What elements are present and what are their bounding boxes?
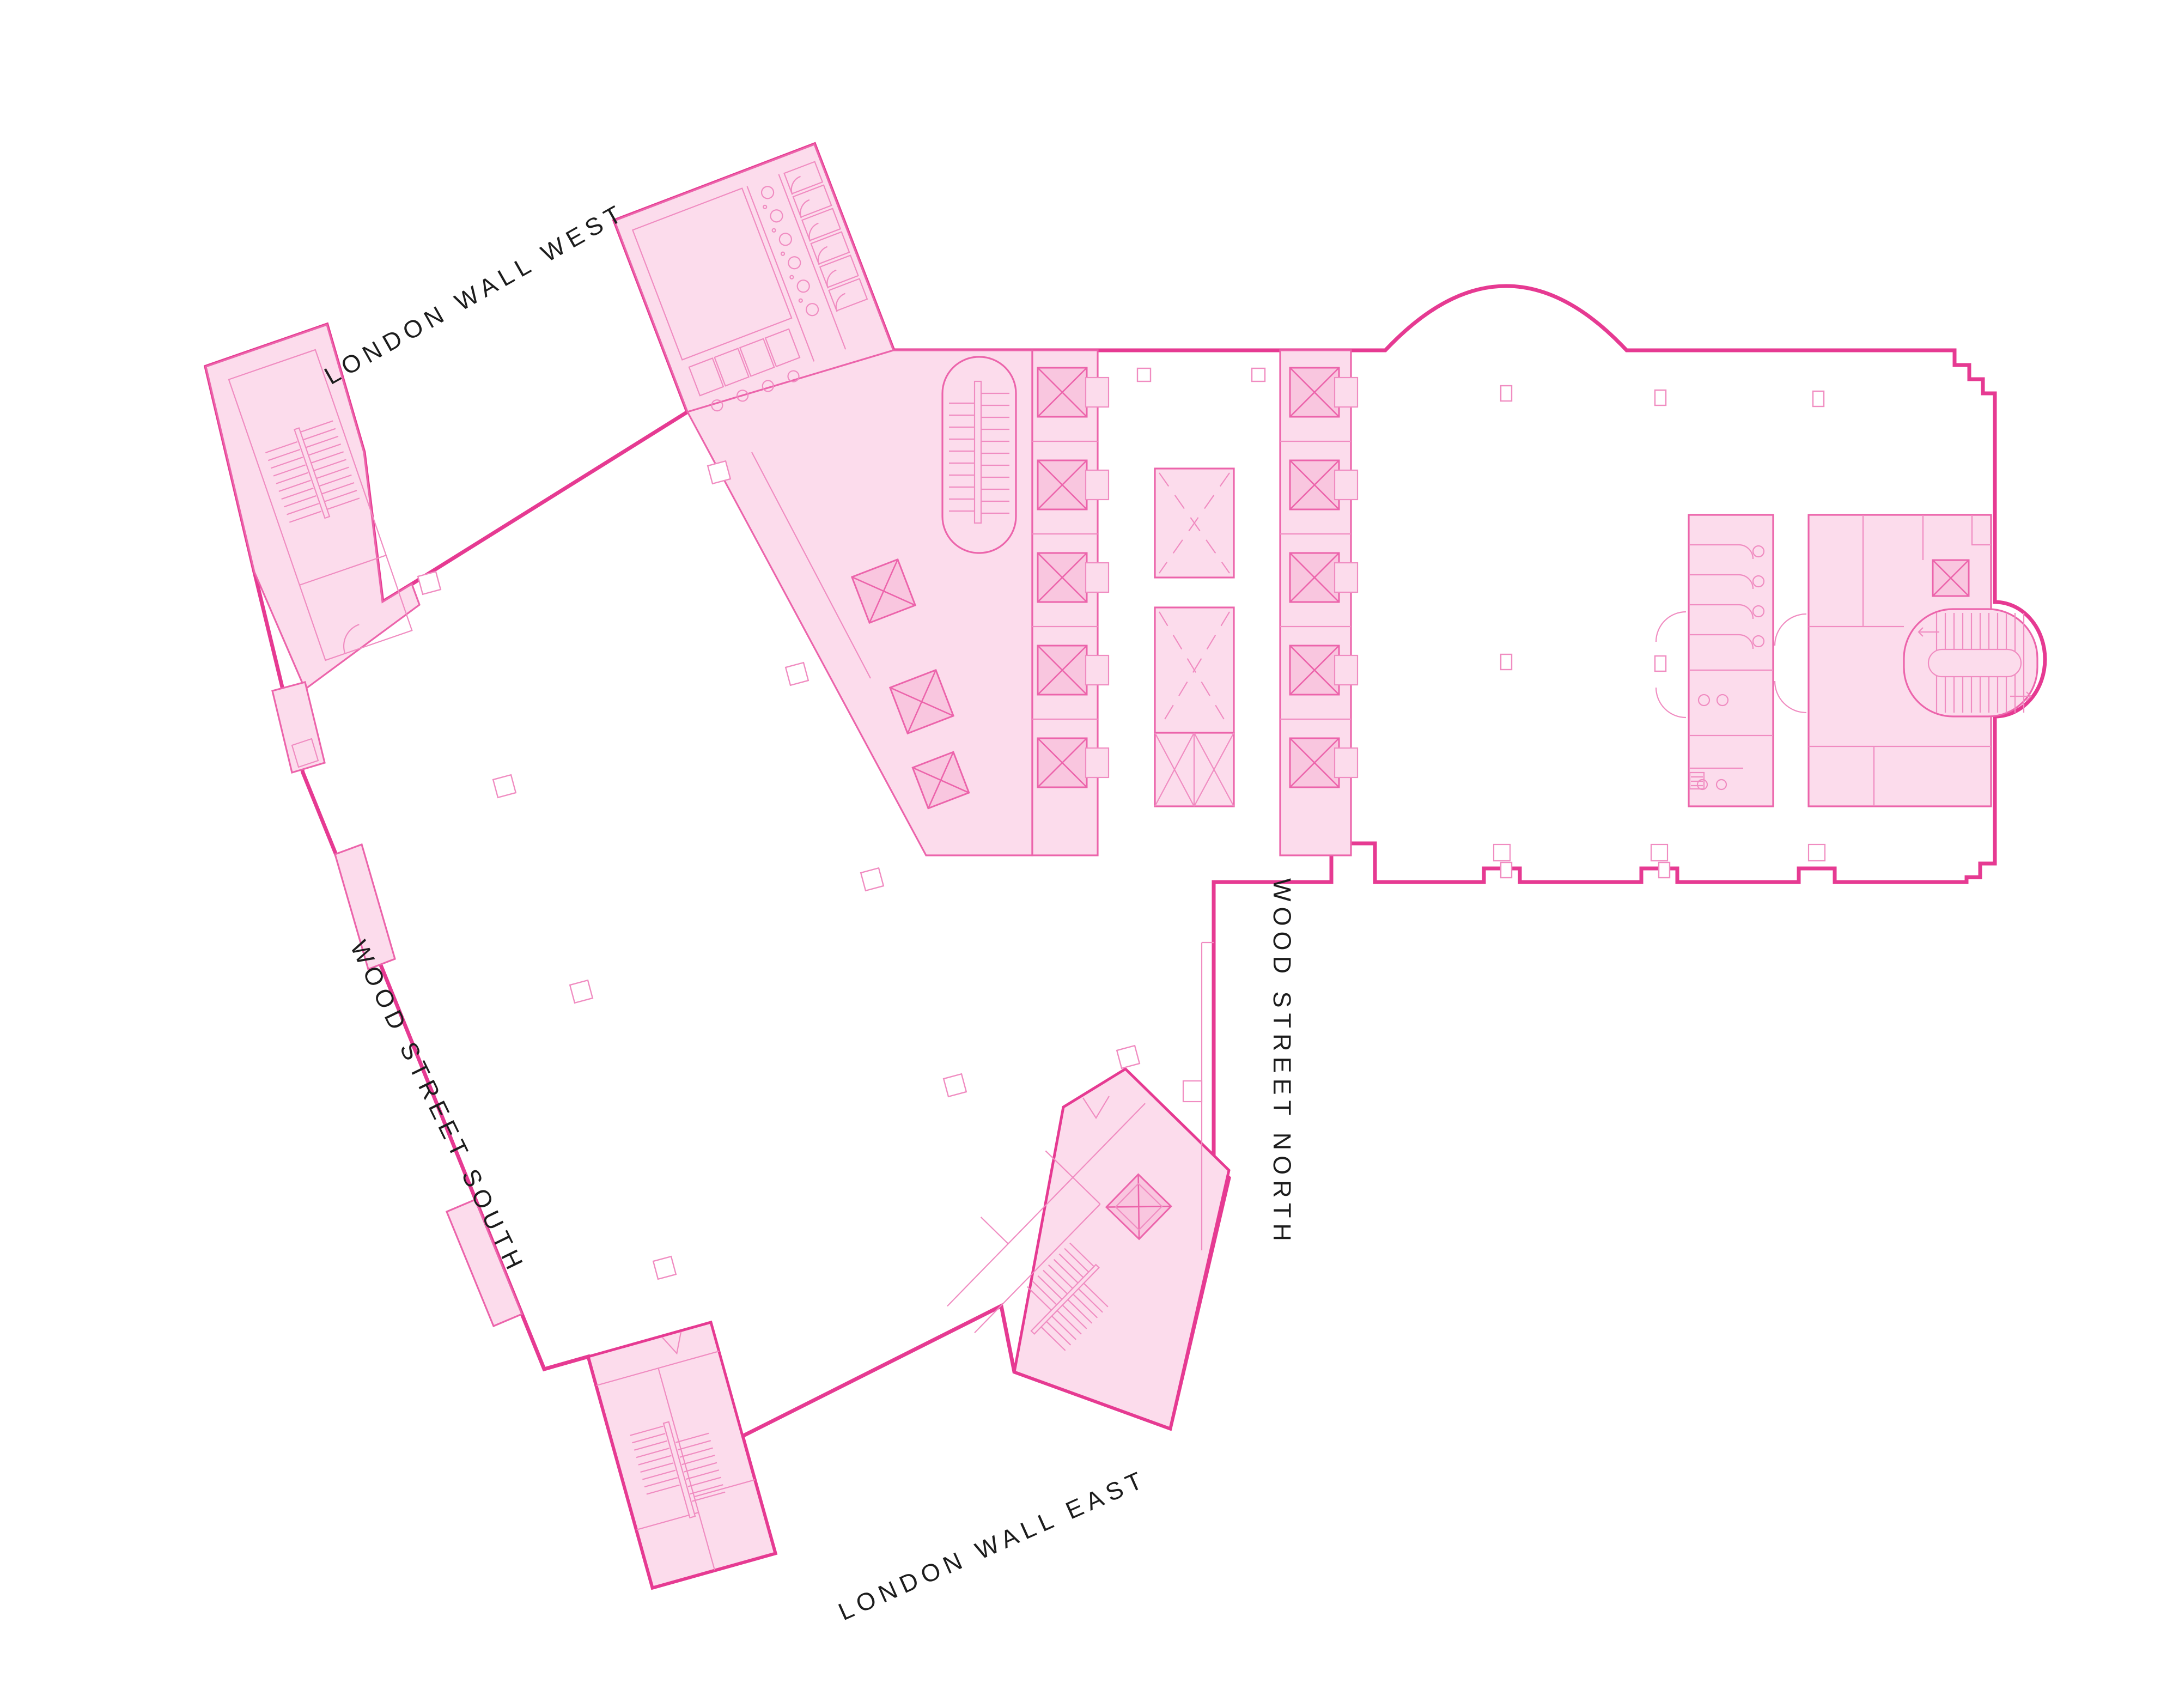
street-label-london-wall-east: LONDON WALL EAST [834, 1464, 1151, 1626]
stair-landing [1928, 649, 2021, 677]
column-icon [708, 461, 731, 484]
column-icon [1501, 386, 1512, 401]
column-icon [1137, 368, 1151, 381]
core-east-restrooms [1689, 515, 1773, 806]
elevator-bank-right [1280, 350, 1358, 855]
column-icon [1655, 656, 1666, 671]
column-icon [570, 980, 593, 1003]
floor-plan-page: LONDON WALL WEST WOOD STREET SOUTH WOOD … [0, 0, 2179, 1708]
column-icon [493, 775, 516, 798]
floor-plan-canvas: LONDON WALL WEST WOOD STREET SOUTH WOOD … [0, 0, 2179, 1708]
elevator-bank-left [1032, 350, 1109, 855]
stair-divider [975, 381, 981, 523]
column-icon [1501, 654, 1512, 670]
restroom-block [1689, 515, 1773, 806]
column-icon [1501, 862, 1512, 878]
column-icon [418, 572, 441, 594]
column-icon [1659, 862, 1670, 878]
machine-elevator-icon [1155, 469, 1234, 806]
column-icon [1655, 390, 1666, 405]
column-icon [1117, 1046, 1140, 1068]
column-icon [861, 868, 884, 891]
column-icon [1252, 368, 1265, 381]
street-label-london-wall-west: LONDON WALL WEST [320, 198, 631, 390]
column-icon [1813, 391, 1824, 406]
column-icon [653, 1256, 676, 1279]
column-icon [786, 662, 808, 685]
column-icon [944, 1074, 966, 1097]
street-label-wood-street-north: WOOD STREET NORTH [1268, 878, 1296, 1247]
